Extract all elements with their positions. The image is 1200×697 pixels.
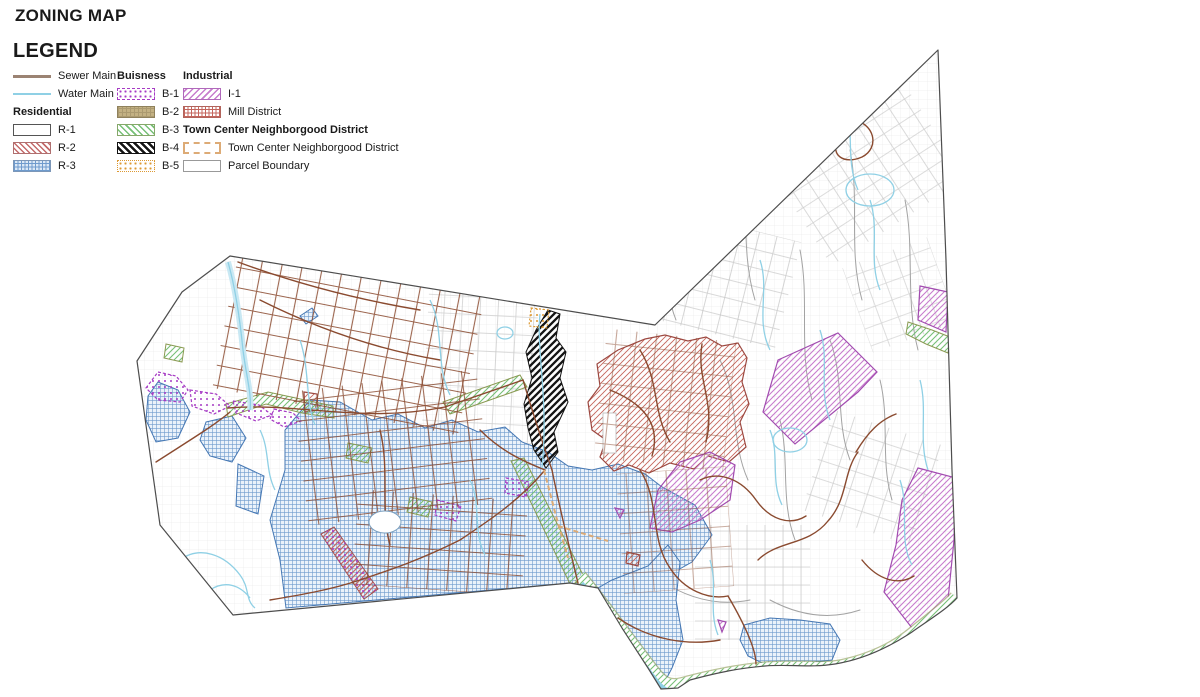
r2-label: R-2: [58, 142, 76, 154]
b3-label: B-3: [162, 124, 179, 136]
b2-swatch: [117, 106, 155, 118]
legend-item-r1: R-1: [13, 124, 117, 136]
b3-swatch: [117, 124, 155, 136]
b1-swatch: [117, 88, 155, 100]
legend-item-b3: B-3: [117, 124, 183, 136]
town-center-label: Town Center Neighborgood District: [228, 142, 399, 154]
legend-item-b2: B-2: [117, 106, 183, 118]
legend-item-b5: B-5: [117, 160, 183, 172]
legend-item-r2: R-2: [13, 142, 117, 154]
i1-swatch: [183, 88, 221, 100]
legend-item-sewer-main: Sewer Main: [13, 70, 117, 82]
b2-label: B-2: [162, 106, 179, 118]
town-center-swatch: [183, 142, 221, 154]
legend-header-town-center: Town Center Neighborgood District: [183, 124, 399, 136]
legend-item-parcel-boundary: Parcel Boundary: [183, 160, 399, 172]
zoning-map-page: { "title": "ZONING MAP", "legend": { "he…: [0, 0, 1200, 692]
legend-heading: LEGEND: [13, 40, 399, 63]
water-main-label: Water Main: [58, 88, 114, 100]
r3-label: R-3: [58, 160, 76, 172]
i1-label: I-1: [228, 88, 241, 100]
legend-item-r3: R-3: [13, 160, 117, 172]
legend-grid: Sewer Main Buisness Industrial Water Mai…: [13, 67, 399, 175]
legend-item-mill-district: Mill District: [183, 106, 399, 118]
b4-label: B-4: [162, 142, 179, 154]
page-title: ZONING MAP: [15, 6, 127, 26]
r1-label: R-1: [58, 124, 76, 136]
legend-item-b1: B-1: [117, 88, 183, 100]
b1-label: B-1: [162, 88, 179, 100]
legend-header-industrial: Industrial: [183, 70, 399, 82]
legend-item-i1: I-1: [183, 88, 399, 100]
parcel-boundary-label: Parcel Boundary: [228, 160, 309, 172]
legend-item-town-center-district: Town Center Neighborgood District: [183, 142, 399, 154]
water-main-swatch: [13, 93, 51, 95]
r2-swatch: [13, 142, 51, 154]
b4-swatch: [117, 142, 155, 154]
b5-label: B-5: [162, 160, 179, 172]
legend-item-b4: B-4: [117, 142, 183, 154]
r1-swatch: [13, 124, 51, 136]
legend-header-residential: Residential: [13, 106, 117, 118]
legend-header-business: Buisness: [117, 70, 183, 82]
mill-district-swatch: [183, 106, 221, 118]
sewer-main-label: Sewer Main: [58, 70, 116, 82]
sewer-main-swatch: [13, 75, 51, 78]
legend: LEGEND Sewer Main Buisness Industrial Wa…: [13, 40, 399, 175]
r3-swatch: [13, 160, 51, 172]
b5-swatch: [117, 160, 155, 172]
parcel-boundary-swatch: [183, 160, 221, 172]
mill-district-label: Mill District: [228, 106, 281, 118]
legend-item-water-main: Water Main: [13, 88, 117, 100]
